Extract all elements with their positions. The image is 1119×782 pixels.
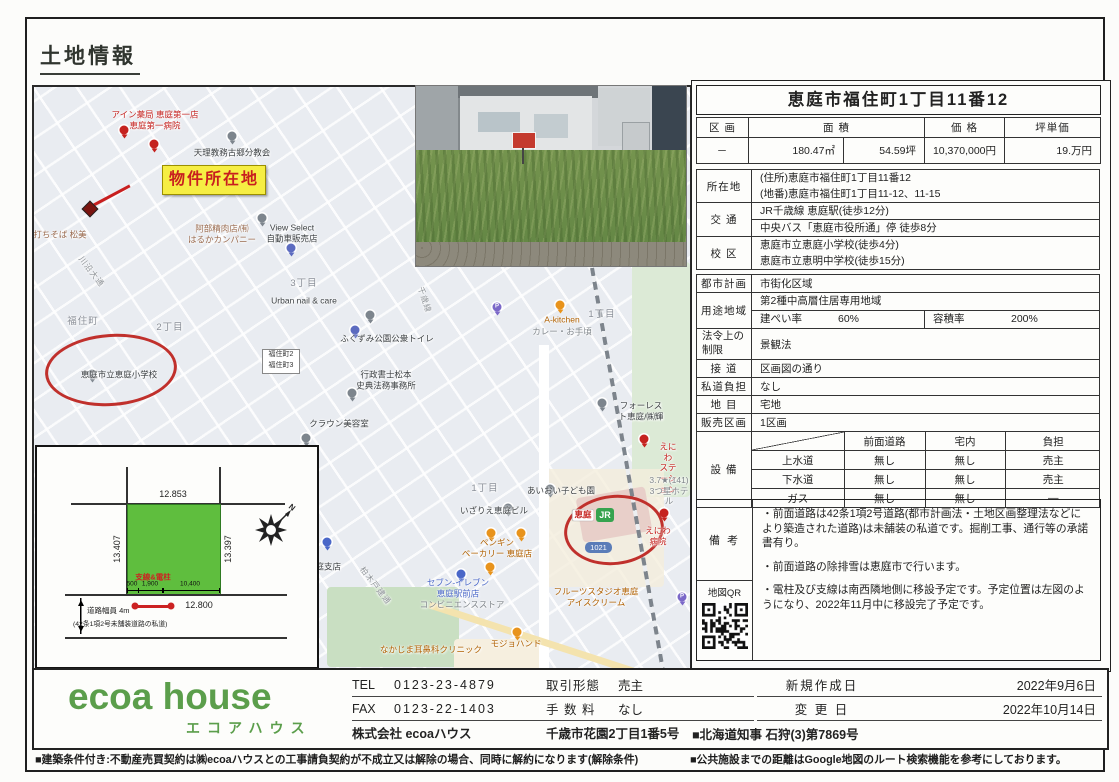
- map-pin: [517, 529, 526, 538]
- fee-value: なし: [618, 699, 643, 718]
- seg2-label: 1,900: [142, 581, 158, 588]
- map-label: 行政書士松本 史典法務事務所: [356, 369, 416, 390]
- bcr-label: 建ぺい率: [752, 311, 838, 328]
- property-arrow: [90, 185, 130, 208]
- map-label: アイン薬局 恵庭第一店 恵庭第一病院: [112, 109, 199, 130]
- far-value: 200%: [1011, 311, 1038, 328]
- pole-dot: [168, 603, 175, 610]
- seg2-arrow: [138, 588, 163, 593]
- dates-block: 新規作成日 2022年9月6日 変 更 日 2022年10月14日: [757, 673, 1102, 721]
- transport-line1: JR千歳線 恵庭駅(徒歩12分): [752, 203, 1099, 219]
- map-label: 1丁目: [471, 483, 498, 495]
- bcr-value: 60%: [838, 311, 859, 328]
- school-line1: 恵庭市立恵庭小学校(徒歩4分): [752, 237, 1099, 253]
- map-pin: [640, 435, 649, 444]
- zoning-label: 用途地域: [697, 293, 752, 329]
- seg1-label: 500: [127, 581, 138, 588]
- map-label: いざりえ恵庭ビル: [460, 506, 528, 517]
- property-details-panel: 恵庭市福住町1丁目11番12 区 画 面 積 価 格 坪単価 － 180.47㎡…: [691, 80, 1111, 672]
- compass-north-label: N: [287, 502, 297, 513]
- city-plan-value: 市街化区域: [752, 275, 1100, 293]
- col-lot: 区 画: [697, 118, 749, 138]
- map-label: 1丁目: [588, 309, 615, 321]
- pole-dot: [132, 603, 139, 610]
- map-label: 川沿大通: [76, 255, 106, 290]
- seg3-arrow: [163, 588, 220, 593]
- map-label: フォーレスト恵庭/㈱輝: [617, 400, 666, 421]
- map-label: カレー・お手頃: [532, 327, 592, 338]
- road-access-value: 区画図の通り: [752, 360, 1100, 378]
- road-width-label: 道路幅員 4m: [87, 605, 130, 616]
- site-photo: [415, 85, 687, 267]
- map-label: Urban nail & care: [271, 296, 337, 307]
- map-pin: [487, 529, 496, 538]
- map-pin: [150, 140, 159, 149]
- remarks-label: 備 考: [697, 500, 752, 581]
- fax-number: 0123-22-1403: [394, 702, 496, 716]
- map-label: セブン-イレブン 恵庭駅前店: [427, 577, 489, 598]
- map-label: フルーツスタジオ恵庭 アイスクリーム: [554, 586, 639, 607]
- transport-line2: 中央バス「恵庭市役所通」停 徒歩8分: [752, 219, 1099, 236]
- equip-cell: 売主: [1005, 451, 1100, 470]
- road-access-label: 接 道: [697, 360, 752, 378]
- dim-bottom: 12.800: [185, 600, 213, 610]
- map-pin: [598, 399, 607, 408]
- updated-date-value: 2022年10月14日: [887, 699, 1102, 718]
- photo-window: [534, 114, 568, 138]
- map-label: ペンギン ベーカリー 恵庭店: [462, 537, 532, 558]
- legal-label: 法令上の 制限: [697, 329, 752, 360]
- map-pin: [302, 434, 311, 443]
- map-label: ふくずみ公園公衆トイレ: [340, 334, 434, 345]
- lots-label: 販売区画: [697, 414, 752, 432]
- map-pin: [366, 311, 375, 320]
- map-label: A-kitchen: [544, 315, 579, 326]
- map-label: なかじま耳鼻科クリニック: [380, 645, 482, 656]
- map-label: 打ちそば 松美: [33, 230, 86, 241]
- equipment-label: 設 備: [697, 432, 752, 508]
- private-road-label: 私道負担: [697, 378, 752, 396]
- tel-number: 0123-23-4879: [394, 678, 496, 692]
- col-area: 面 積: [749, 118, 925, 138]
- map-pin: [348, 389, 357, 398]
- footnote-right: ■公共施設までの距離はGoogle地図のルート検索機能を参考にしております。: [690, 751, 1067, 767]
- photo-window: [478, 112, 520, 132]
- far-label: 容積率: [925, 311, 1011, 328]
- location-line1: (住所)恵庭市福住町1丁目11番12: [752, 170, 1099, 186]
- map-label: えにわ病院: [642, 525, 674, 546]
- fee-label: 手 数 料: [546, 699, 618, 718]
- fax-label: FAX: [352, 702, 394, 716]
- license-number: ■北海道知事 石狩(3)第7869号: [692, 724, 859, 743]
- photo-sale-sign: [512, 132, 536, 149]
- map-pin: P: [678, 593, 687, 602]
- map-pin: P: [493, 303, 502, 312]
- regulation-table: 都市計画 市街化区域 用途地域 第2種中高層住居専用地域 建ぺい率 60% 容積…: [696, 274, 1100, 508]
- qr-code: [702, 603, 748, 649]
- seg3-label: 10,400: [180, 581, 200, 588]
- equipment-diagonal-cell: [752, 432, 844, 451]
- remarks-bullet2: ・前面道路の除排雪は恵庭市で行います。: [762, 560, 1091, 575]
- transport-label: 交 通: [697, 203, 752, 237]
- bus-stop-line2: 福住町3: [263, 361, 299, 372]
- map-pin: [513, 628, 522, 637]
- plan-road-line: [65, 594, 287, 596]
- equip-cell: 無し: [925, 470, 1005, 489]
- price-value: 10,370,000円: [925, 138, 1005, 164]
- remarks-box: 備 考 地図QR ・前面道路は42条1項2号道路(都市計画法・土地区画整理法など…: [696, 499, 1101, 661]
- property-address-title: 恵庭市福住町1丁目11番12: [696, 85, 1101, 115]
- map-label: 2丁目: [156, 322, 183, 334]
- dim-top: 12.853: [159, 489, 187, 499]
- map-label: 恵庭市立恵庭小学校: [81, 370, 158, 381]
- equip-cell: 売主: [1005, 470, 1100, 489]
- land-category-label: 地 目: [697, 396, 752, 414]
- equip-row-name: 下水道: [752, 470, 844, 489]
- bus-stop-sign: 福住町2 福住町3: [262, 349, 300, 374]
- photo-gravel: [416, 242, 686, 266]
- map-label: コンビニエンスストア: [420, 600, 505, 611]
- map-label: あいおい子ども園: [527, 486, 595, 497]
- equip-row-name: 上水道: [752, 451, 844, 470]
- equip-col1: 前面道路: [844, 432, 925, 451]
- map-pin: [323, 538, 332, 547]
- unit-price-value: 19.万円: [1005, 138, 1101, 164]
- tel-label: TEL: [352, 678, 394, 692]
- road-note-label: (42条1項2号未舗装道路の私道): [73, 618, 167, 628]
- company-name: 株式会社 ecoaハウス: [352, 721, 560, 744]
- contact-block: TEL 0123-23-4879 FAX 0123-22-1403 株式会社 e…: [352, 673, 560, 744]
- map-label: 恵庭: [572, 510, 593, 521]
- area-tsubo: 54.59坪: [844, 138, 925, 164]
- jr-station-badge: JR: [596, 508, 614, 522]
- land-category-value: 宅地: [752, 396, 1100, 414]
- map-pin: [287, 244, 296, 253]
- remarks-bullet3: ・電柱及び支線は南西隣地側に移設予定です。予定位置は左図のようになり、2022年…: [762, 583, 1091, 612]
- company-logo: ecoa house: [68, 676, 272, 718]
- zoning-value: 第2種中高層住居専用地域: [752, 293, 1099, 311]
- company-logo-kana: エコアハウス: [186, 718, 311, 738]
- pole-relocation-line: [135, 605, 171, 608]
- lot-value: －: [697, 138, 749, 164]
- site-plan-diagram: 12.853 13.407 13.397 支線&電柱 500 1,900 10,…: [35, 445, 319, 669]
- equip-cell: 無し: [844, 470, 925, 489]
- remarks-bullet1: ・前面道路は42条1項2号道路(都市計画法・土地区画整理法などにより築造された道…: [762, 507, 1091, 551]
- equip-col3: 負担: [1005, 432, 1100, 451]
- lots-value: 1区画: [752, 414, 1100, 432]
- map-label: モジョハンド: [490, 639, 541, 650]
- remarks-body: ・前面道路は42条1項2号道路(都市計画法・土地区画整理法などにより築造された道…: [753, 500, 1100, 660]
- map-label: クラウン美容室: [309, 419, 369, 430]
- city-plan-label: 都市計画: [697, 275, 752, 293]
- area-m2: 180.47㎡: [749, 138, 844, 164]
- bus-stop-line1: 福住町2: [263, 350, 299, 361]
- equip-cell: 無し: [844, 451, 925, 470]
- photo-sign-pole: [522, 148, 524, 164]
- location-line2: (地番)恵庭市福住町1丁目11-12、11-15: [752, 186, 1099, 202]
- created-date-value: 2022年9月6日: [887, 675, 1102, 694]
- equip-cell: 無し: [925, 451, 1005, 470]
- equip-col2: 宅内: [925, 432, 1005, 451]
- map-pin: [486, 563, 495, 572]
- plan-road-line: [65, 637, 287, 639]
- col-price: 価 格: [925, 118, 1005, 138]
- company-footer: ecoa house エコアハウス TEL 0123-23-4879 FAX 0…: [32, 668, 1109, 750]
- location-label: 所在地: [697, 170, 752, 203]
- summary-table: 区 画 面 積 価 格 坪単価 － 180.47㎡ 54.59坪 10,370,…: [696, 117, 1101, 164]
- road-width-arrow: [78, 598, 83, 634]
- compass-icon: [249, 505, 295, 551]
- map-pin: [556, 301, 565, 310]
- map-label: 3.7★(141) 3つ星ホテル: [649, 475, 688, 507]
- legal-value: 景観法: [752, 329, 1100, 360]
- dim-right: 13.397: [223, 535, 233, 563]
- created-date-label: 新規作成日: [757, 675, 887, 694]
- school-line2: 恵庭市立恵明中学校(徒歩15分): [752, 253, 1099, 269]
- map-qr-label: 地図QR: [697, 581, 752, 603]
- map-label: 3丁目: [290, 278, 317, 290]
- route-1021-shield: 1021: [585, 542, 612, 553]
- col-unit-price: 坪単価: [1005, 118, 1101, 138]
- equipment-table: 前面道路 宅内 負担 上水道 無し 無し 売主 下水道 無し: [752, 432, 1100, 507]
- remarks-label-column: 備 考 地図QR: [697, 500, 753, 660]
- map-label: 千歳線: [415, 286, 433, 315]
- map-pin: [258, 214, 267, 223]
- footnote-left: ■建築条件付き:不動産売買契約は㈱ecoaハウスとの工事請負契約が不成立又は解除…: [35, 751, 638, 767]
- deal-type-label: 取引形態: [546, 675, 618, 694]
- map-label: 天理教務古郷分教会: [194, 148, 271, 159]
- location-table: 所在地 (住所)恵庭市福住町1丁目11番12 (地番)恵庭市福住町1丁目11-1…: [696, 169, 1100, 270]
- land-info-sheet: 土地情報 物件所在地 JR 1021 福住町2 福住町3 アイン薬局 恵庭第一店…: [0, 0, 1119, 782]
- map-pin: [228, 132, 237, 141]
- map-label: 阿部精肉店/㈲ はるかカンパニー: [188, 223, 256, 244]
- property-location-callout: 物件所在地: [162, 165, 266, 195]
- deal-type-value: 売主: [618, 675, 643, 694]
- photo-grass-lot: [416, 150, 686, 246]
- updated-date-label: 変 更 日: [757, 699, 887, 718]
- map-label: View Select 自動車販売店: [266, 222, 317, 243]
- map-road: [539, 345, 549, 672]
- page-title: 土地情報: [40, 40, 140, 75]
- dim-left: 13.407: [112, 535, 122, 563]
- private-road-value: なし: [752, 378, 1100, 396]
- map-label: 福住町: [67, 316, 99, 328]
- school-label: 校 区: [697, 237, 752, 270]
